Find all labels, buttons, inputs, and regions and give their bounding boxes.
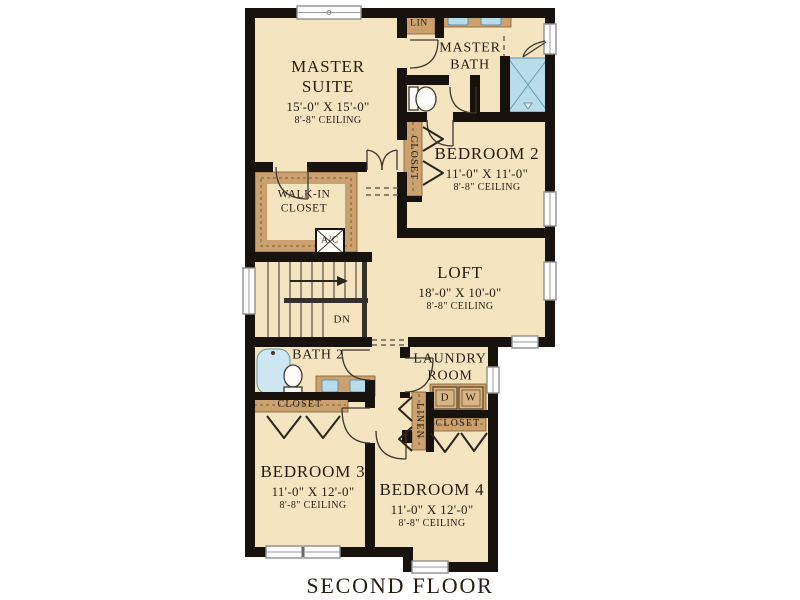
master-suite-name-line1: MASTER — [286, 57, 369, 77]
walk-in-closet-label: WALK-IN CLOSET — [278, 188, 331, 215]
bedroom2-name: BEDROOM 2 — [435, 144, 540, 164]
shower — [508, 58, 548, 112]
bedroom3-label: BEDROOM 3 11'-0" X 12'-0" 8'-8" CEILING — [261, 462, 366, 512]
bedroom2-ceiling: 8'-8" CEILING — [435, 182, 540, 194]
bedroom2-dims: 11'-0" X 11'-0" — [435, 166, 540, 181]
loft-dims: 18'-0" X 10'-0" — [418, 285, 501, 300]
bedroom4-label: BEDROOM 4 11'-0" X 12'-0" 8'-8" CEILING — [380, 480, 485, 530]
loft-ceiling: 8'-8" CEILING — [418, 301, 501, 313]
floor-plan: MASTER SUITE 15'-0" X 15'-0" 8'-8" CEILI… — [0, 0, 800, 600]
bedroom4-closet-label: CLOSET — [436, 418, 481, 430]
master-suite-name-line2: SUITE — [286, 77, 369, 97]
washer-label: W — [465, 392, 476, 405]
bedroom2-closet-label: CLOSET — [407, 136, 419, 181]
bedroom4-ceiling: 8'-8" CEILING — [380, 518, 485, 530]
bedroom3-ceiling: 8'-8" CEILING — [261, 500, 366, 512]
window — [544, 24, 556, 54]
window — [297, 6, 361, 19]
linen-closet-label: LINEN — [413, 403, 425, 439]
page-title: SECOND FLOOR — [306, 573, 493, 599]
master-suite-dims: 15'-0" X 15'-0" — [286, 99, 369, 114]
loft-label: LOFT 18'-0" X 10'-0" 8'-8" CEILING — [418, 263, 501, 313]
walk-in-closet-name-line1: WALK-IN — [278, 188, 331, 202]
window — [544, 192, 556, 226]
bath2-toilet — [284, 365, 302, 395]
bath2-name: BATH 2 — [292, 348, 344, 365]
master-suite-label: MASTER SUITE 15'-0" X 15'-0" 8'-8" CEILI… — [286, 57, 369, 127]
lin-closet-label: LIN — [410, 18, 428, 29]
bath2-label: BATH 2 — [292, 348, 344, 365]
window — [487, 367, 499, 393]
window — [544, 262, 556, 300]
bedroom3-name: BEDROOM 3 — [261, 462, 366, 482]
bedroom3-dims: 11'-0" X 12'-0" — [261, 484, 366, 499]
laundry-name-line2: ROOM — [413, 368, 486, 385]
sink — [350, 380, 366, 392]
ac-label: A/C — [321, 235, 339, 246]
sink — [322, 380, 338, 392]
window — [412, 561, 448, 573]
window — [304, 546, 340, 558]
bedroom3-closet-label: CLOSET — [278, 399, 323, 411]
master-bath-name-line1: MASTER — [439, 40, 501, 57]
window — [266, 546, 302, 558]
stair-guard-rail — [362, 260, 367, 338]
master-suite-ceiling: 8'-8" CEILING — [286, 115, 369, 127]
laundry-name-line1: LAUNDRY — [413, 351, 486, 368]
window — [512, 336, 538, 348]
laundry-label: LAUNDRY ROOM — [413, 351, 486, 384]
stairs-down-label: DN — [334, 314, 351, 327]
loft-name: LOFT — [418, 263, 501, 283]
dryer-label: D — [441, 392, 450, 405]
stair-railing — [284, 298, 368, 303]
bedroom2-label: BEDROOM 2 11'-0" X 11'-0" 8'-8" CEILING — [435, 144, 540, 194]
master-toilet — [409, 87, 436, 111]
bedroom4-dims: 11'-0" X 12'-0" — [380, 502, 485, 517]
master-bath-label: MASTER BATH — [439, 40, 501, 73]
bedroom4-name: BEDROOM 4 — [380, 480, 485, 500]
master-bath-name-line2: BATH — [439, 57, 501, 74]
window — [243, 268, 255, 314]
walk-in-closet-name-line2: CLOSET — [278, 202, 331, 216]
